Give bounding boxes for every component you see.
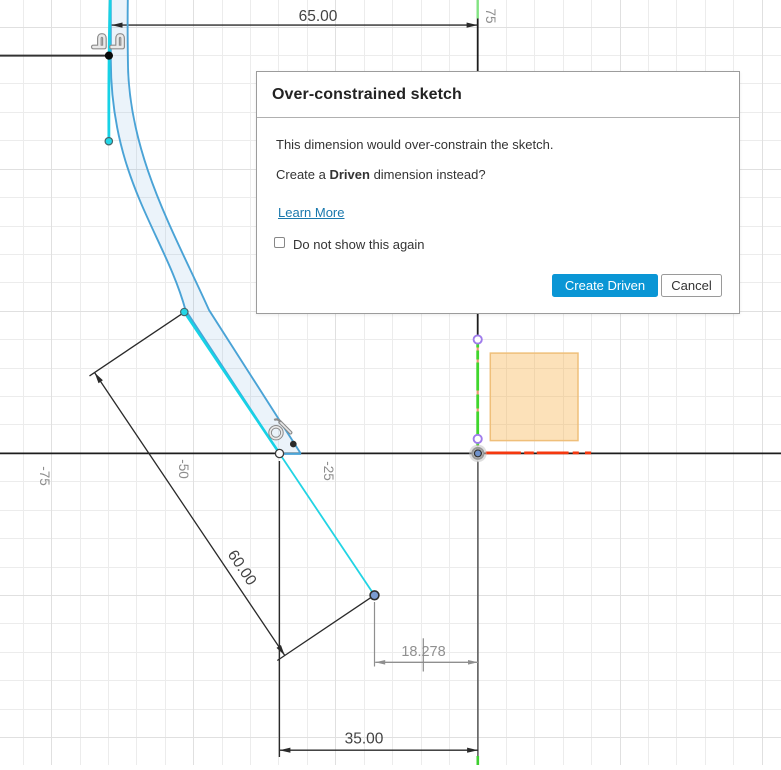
svg-text:-75: -75 bbox=[37, 466, 52, 486]
svg-text:-25: -25 bbox=[321, 461, 336, 481]
svg-text:75: 75 bbox=[483, 8, 498, 23]
svg-text:65.00: 65.00 bbox=[299, 8, 338, 25]
svg-text:-50: -50 bbox=[176, 459, 191, 479]
svg-text:35.00: 35.00 bbox=[345, 731, 384, 748]
